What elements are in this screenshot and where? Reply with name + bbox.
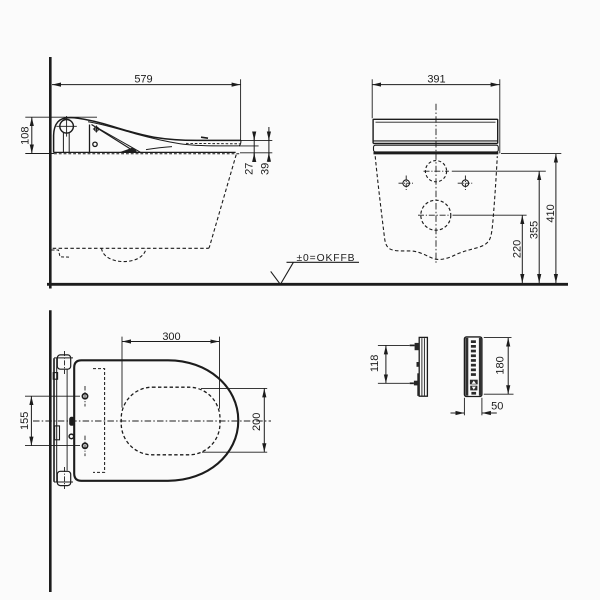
svg-text:39: 39 xyxy=(259,163,271,175)
svg-text:410: 410 xyxy=(545,204,557,222)
svg-text:180: 180 xyxy=(494,356,506,374)
svg-text:108: 108 xyxy=(20,127,32,145)
svg-text:220: 220 xyxy=(512,240,524,258)
svg-text:50: 50 xyxy=(491,400,503,412)
svg-text:155: 155 xyxy=(19,412,31,430)
svg-text:355: 355 xyxy=(528,221,540,239)
svg-text:579: 579 xyxy=(134,73,152,85)
svg-text:27: 27 xyxy=(244,163,256,175)
svg-text:391: 391 xyxy=(427,73,445,85)
svg-text:118: 118 xyxy=(369,355,381,373)
svg-text:200: 200 xyxy=(251,413,263,431)
svg-text:300: 300 xyxy=(162,331,180,343)
svg-text:±0=OKFFB: ±0=OKFFB xyxy=(297,253,356,264)
